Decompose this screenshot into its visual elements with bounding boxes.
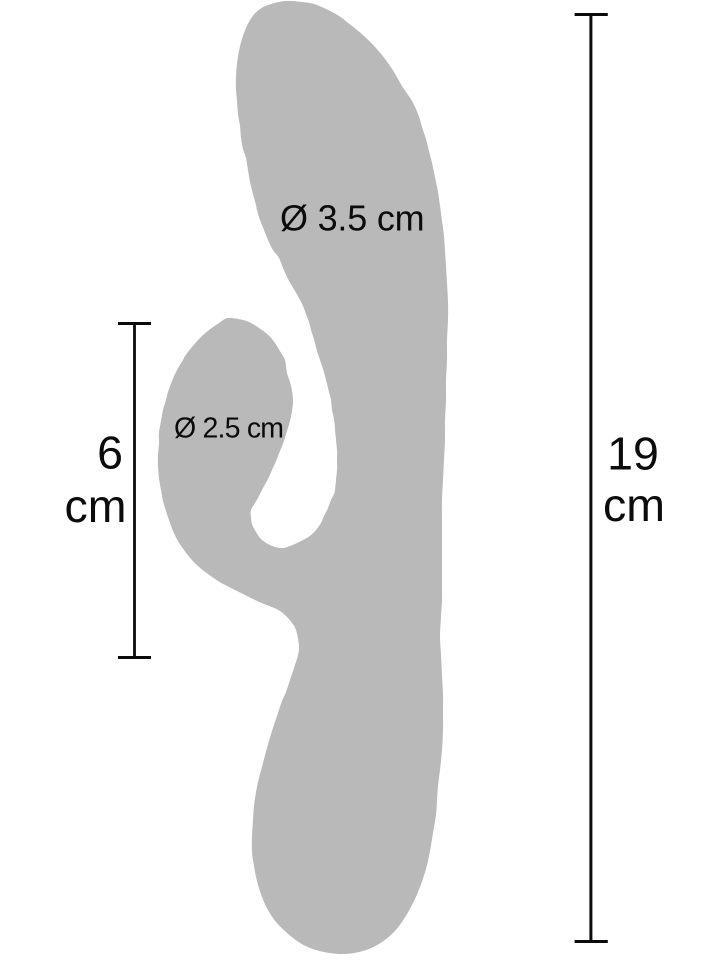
svg-text:Ø 2.5 cm: Ø 2.5 cm [174, 413, 283, 445]
svg-text:cm: cm [603, 479, 665, 531]
svg-text:cm: cm [65, 480, 127, 532]
svg-text:6: 6 [97, 427, 123, 479]
svg-text:19: 19 [607, 428, 659, 480]
svg-text:Ø 3.5 cm: Ø 3.5 cm [280, 198, 424, 239]
